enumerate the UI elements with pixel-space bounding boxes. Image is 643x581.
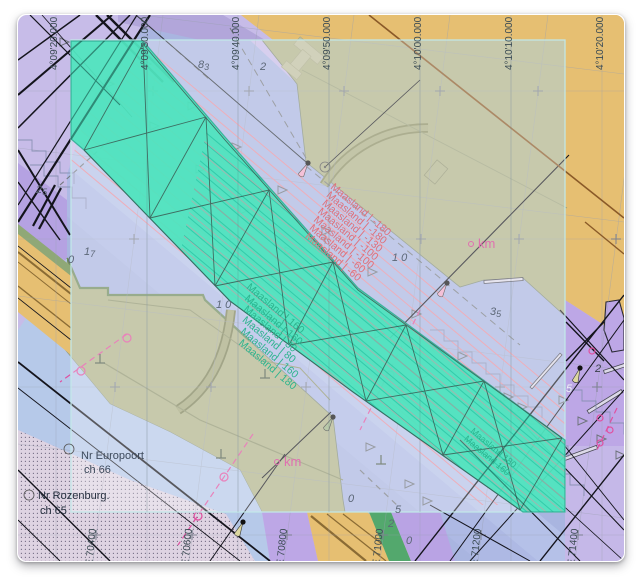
svg-text:5: 5 — [566, 383, 573, 395]
svg-text:4°09'30.000: 4°09'30.000 — [140, 16, 151, 70]
svg-text:4°10'20.000: 4°10'20.000 — [595, 16, 606, 70]
svg-text:4°09'50.000: 4°09'50.000 — [322, 16, 333, 70]
svg-text:Nr Rozenburg.: Nr Rozenburg. — [38, 490, 110, 502]
svg-text:0: 0 — [68, 254, 75, 266]
svg-text:4°09'20.000: 4°09'20.000 — [49, 16, 60, 70]
svg-text:km: km — [478, 236, 495, 251]
svg-text:Nr Europoort: Nr Europoort — [81, 450, 144, 462]
svg-text:4°09'40.000: 4°09'40.000 — [231, 16, 242, 70]
svg-text:4°10'10.000: 4°10'10.000 — [504, 16, 515, 70]
svg-text:1 0: 1 0 — [216, 299, 232, 311]
svg-text:2: 2 — [259, 61, 266, 73]
svg-text:km: km — [284, 454, 301, 469]
svg-text:ch 65: ch 65 — [40, 505, 67, 517]
svg-text:0: 0 — [406, 535, 413, 547]
svg-text:0: 0 — [348, 493, 355, 505]
svg-text:1 0: 1 0 — [392, 252, 408, 264]
svg-text:2: 2 — [594, 363, 601, 375]
svg-text:2: 2 — [387, 518, 394, 530]
svg-text:ch 66: ch 66 — [84, 464, 111, 476]
svg-text:4°10'00.000: 4°10'00.000 — [413, 16, 424, 70]
svg-text:5: 5 — [395, 504, 402, 516]
